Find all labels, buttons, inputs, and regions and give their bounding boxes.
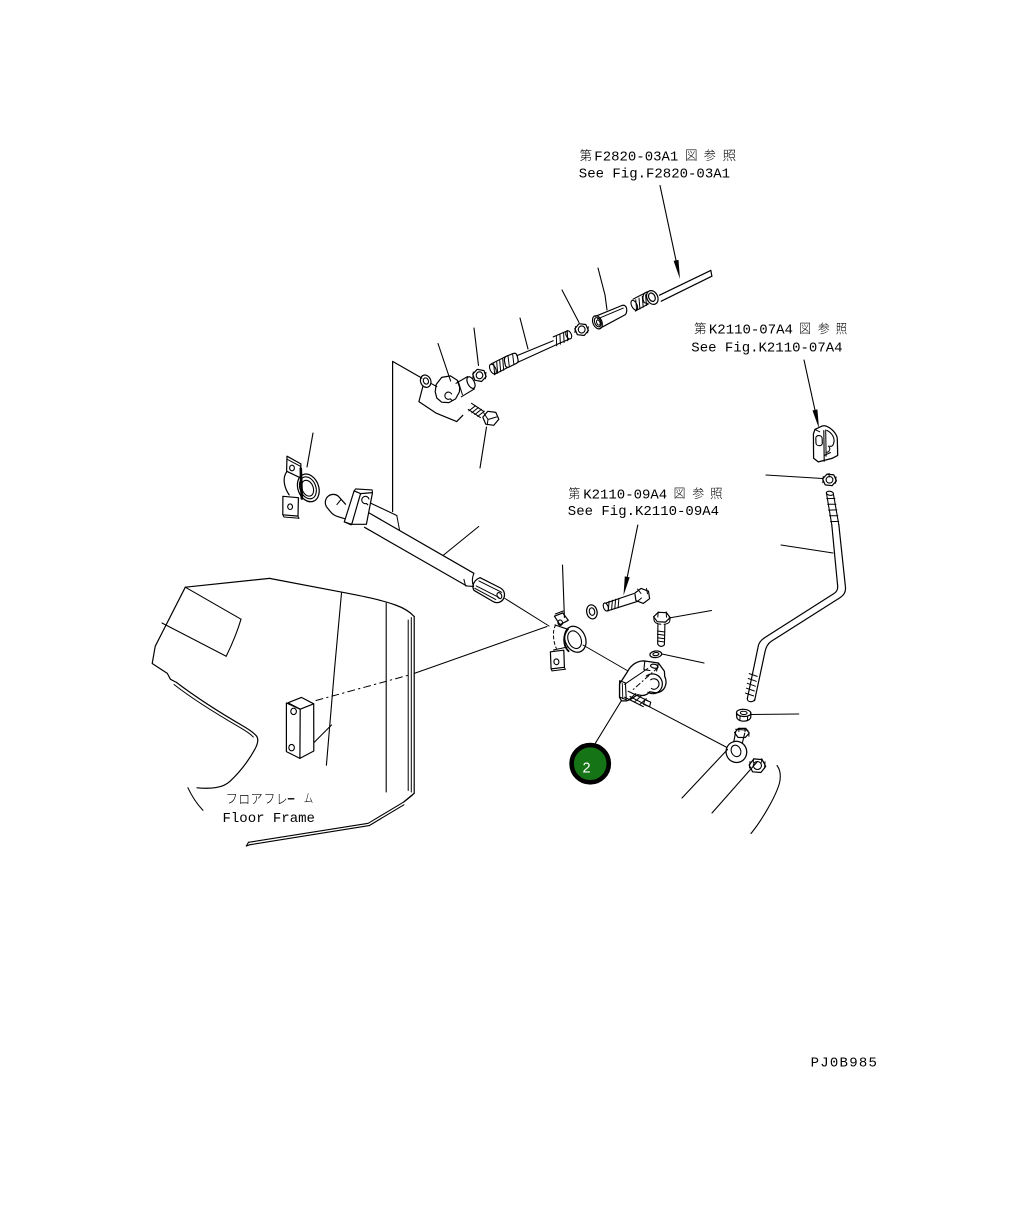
svg-text:K2110-09A4: K2110-09A4 <box>583 488 667 504</box>
svg-text:See Fig.K2110-07A4: See Fig.K2110-07A4 <box>691 340 842 356</box>
svg-text:See Fig.K2110-09A4: See Fig.K2110-09A4 <box>568 504 719 520</box>
svg-text:2: 2 <box>583 760 591 776</box>
svg-text:PJ0B985: PJ0B985 <box>811 1056 879 1072</box>
svg-text:See Fig.F2820-03A1: See Fig.F2820-03A1 <box>579 166 730 182</box>
svg-text:K2110-07A4: K2110-07A4 <box>709 322 793 338</box>
svg-text:Floor Frame: Floor Frame <box>223 811 315 827</box>
svg-text:F2820-03A1: F2820-03A1 <box>594 150 678 166</box>
